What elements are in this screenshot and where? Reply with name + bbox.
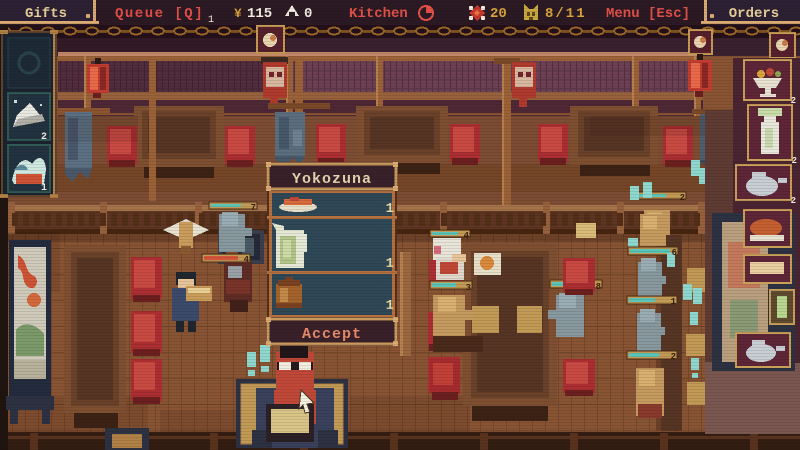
- svg-text:1: 1: [386, 298, 394, 314]
- svg-text:3: 3: [466, 283, 471, 293]
- svg-text:4: 4: [244, 255, 250, 265]
- svg-text:115: 115: [247, 6, 272, 22]
- svg-text:¥: ¥: [234, 6, 242, 21]
- svg-text:Menu [Esc]: Menu [Esc]: [606, 6, 690, 22]
- svg-text:0: 0: [304, 6, 312, 22]
- svg-text:Yokozuna: Yokozuna: [292, 171, 372, 188]
- svg-text:4: 4: [464, 231, 470, 241]
- svg-text:2: 2: [41, 132, 47, 143]
- svg-text:Kitchen: Kitchen: [349, 6, 408, 22]
- svg-text:1: 1: [208, 15, 214, 26]
- svg-text:1: 1: [386, 201, 394, 217]
- svg-text:Queue [Q]: Queue [Q]: [115, 6, 204, 22]
- svg-text:2: 2: [791, 96, 796, 106]
- svg-text:8: 8: [596, 282, 601, 292]
- svg-text:1: 1: [386, 256, 394, 272]
- svg-text:20: 20: [490, 6, 507, 22]
- svg-text:Orders: Orders: [729, 6, 779, 22]
- svg-text:1: 1: [41, 183, 47, 194]
- svg-text:2: 2: [791, 196, 796, 206]
- svg-text:1: 1: [671, 297, 677, 307]
- svg-text:7: 7: [251, 203, 256, 213]
- svg-text:2: 2: [792, 156, 797, 166]
- svg-text:2: 2: [680, 193, 685, 203]
- svg-text:6: 6: [672, 248, 677, 258]
- svg-text:2: 2: [671, 352, 676, 362]
- svg-text:Gifts: Gifts: [25, 6, 67, 22]
- svg-text:8/11: 8/11: [545, 6, 587, 22]
- svg-text:Accept: Accept: [302, 326, 362, 343]
